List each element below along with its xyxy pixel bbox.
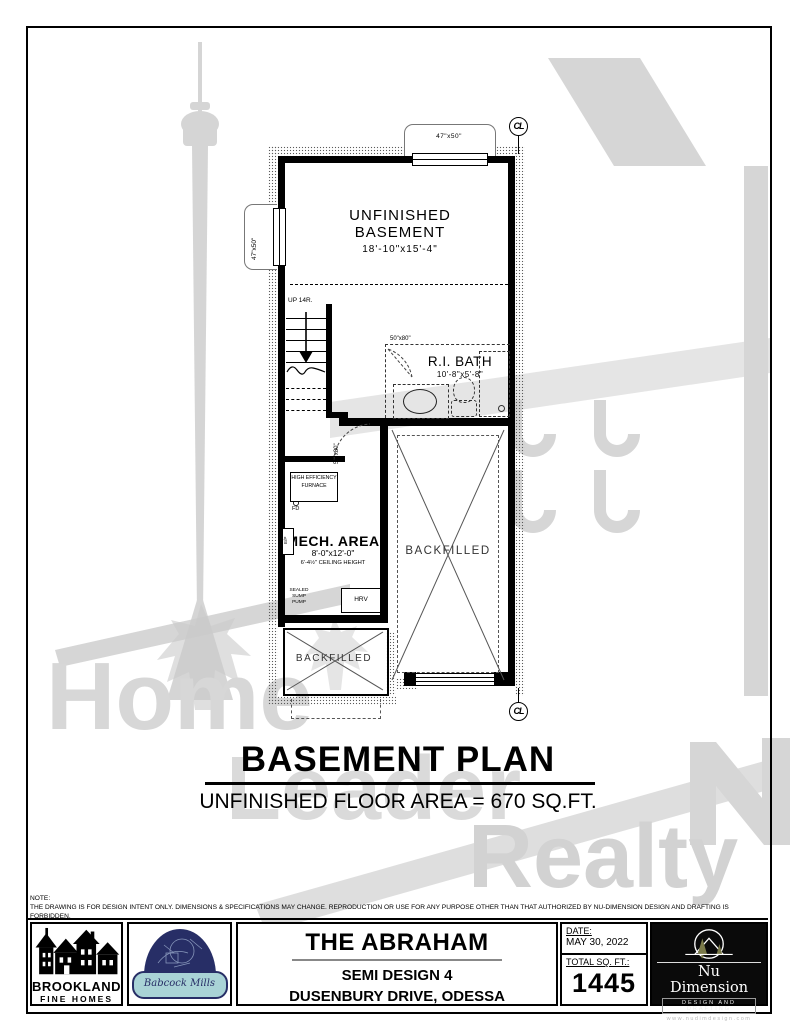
date-label: DATE: — [566, 926, 642, 936]
backfilled-porch-label: BACKFILLED — [283, 653, 385, 665]
electrical-panel: E/P — [282, 528, 294, 555]
porch-stipple-left — [268, 627, 278, 704]
nudimension-logo-box: Nu Dimension DESIGN AND DRAFTING www.nud… — [650, 922, 768, 1006]
bath-sink — [403, 389, 437, 414]
footer-divider — [28, 918, 768, 920]
bath-toilet-tank — [451, 400, 477, 417]
page-title-underline — [205, 782, 595, 785]
brookland-subtitle: FINE HOMES — [32, 994, 121, 1004]
project-name-underline — [292, 959, 502, 961]
sump-pump-label: SEALED SUMP PUMP — [286, 588, 312, 606]
garage-door-lines — [416, 673, 494, 687]
wall-stair-stub — [326, 412, 348, 418]
project-title-box: THE ABRAHAM SEMI DESIGN 4 DUSENBURY DRIV… — [236, 922, 558, 1006]
beam-dashed-line — [290, 284, 508, 285]
stairs-treads — [286, 308, 326, 418]
bath-door-label: 50"x80" — [390, 336, 411, 343]
sqft-box: TOTAL SQ. FT.: 1445 — [560, 953, 648, 1006]
date-value: MAY 30, 2022 — [566, 937, 642, 948]
babcock-name: Babcock Mills — [144, 978, 215, 989]
babcock-banner: Babcock Mills — [132, 971, 228, 999]
wall-stair-right — [326, 304, 332, 418]
bath-tub-drain — [498, 405, 505, 412]
sqft-value: 1445 — [566, 968, 642, 999]
centerline-symbol-top: CL — [509, 117, 528, 136]
window-left-symbol — [273, 208, 286, 266]
page-subtitle: UNFINISHED FLOOR AREA = 670 SQ.FT. — [158, 790, 638, 814]
brookland-house-icon — [32, 926, 121, 978]
drawing-sheet: Home Leader Realty 47"x50" 47"x50" CL CL… — [0, 0, 796, 1030]
room-mech-label: MECH. AREA 8'-0"x12'-0" 6'-4½" CEILING H… — [283, 533, 383, 567]
wall-bath-bottom — [339, 418, 515, 426]
centerline-leader-bottom — [518, 688, 519, 702]
window-top-label: 47"x50" — [414, 133, 484, 140]
nudimension-house-icon — [680, 926, 738, 962]
window-top-symbol — [412, 153, 488, 166]
project-model: SEMI DESIGN 4 — [238, 965, 556, 986]
centerline-symbol-bottom: CL — [509, 702, 528, 721]
backfilled-right-label: BACKFILLED — [398, 545, 498, 558]
wall-garage-jamb-right — [494, 672, 508, 686]
wall-garage-jamb-left — [404, 672, 416, 686]
babcock-logo-box: Babcock Mills — [127, 922, 232, 1006]
floor-drain-label: FD — [292, 506, 299, 512]
date-box: DATE: MAY 30, 2022 — [560, 922, 648, 955]
wall-mech-bottom — [278, 615, 388, 623]
window-left-label: 47"x50" — [251, 212, 260, 260]
sqft-label: TOTAL SQ. FT.: — [566, 957, 642, 967]
hrv-box: HRV — [341, 588, 381, 613]
brookland-logo-box: BROOKLAND FINE HOMES — [30, 922, 123, 1006]
note-label: NOTE: — [30, 895, 766, 904]
centerline-leader-top — [518, 136, 519, 154]
bath-tub — [479, 351, 510, 417]
bath-partition-left — [385, 344, 386, 418]
furnace-box: HIGH EFFICIENCY FURNACE — [290, 472, 338, 502]
bath-partition-top — [385, 344, 510, 345]
project-name: THE ABRAHAM — [238, 929, 556, 957]
room-basement-label: UNFINISHED BASEMENT 18'-10"x15'-4" — [320, 207, 480, 255]
stairs-up-label: UP 14R. — [288, 297, 312, 304]
nudimension-name: Nu Dimension — [657, 962, 761, 996]
brookland-name: BROOKLAND — [32, 979, 121, 994]
wall-mech-right — [380, 426, 388, 622]
stair-door-label: 50"x80" — [334, 424, 343, 464]
nudimension-tagline: DESIGN AND DRAFTING — [662, 998, 756, 1014]
nudimension-website: www.nudimdesign.com — [652, 1016, 766, 1022]
project-address: DUSENBURY DRIVE, ODESSA — [238, 986, 556, 1007]
foundation-stipple-right — [515, 146, 525, 696]
page-title: BASEMENT PLAN — [178, 740, 618, 780]
porch-dashed-extent — [291, 699, 381, 719]
